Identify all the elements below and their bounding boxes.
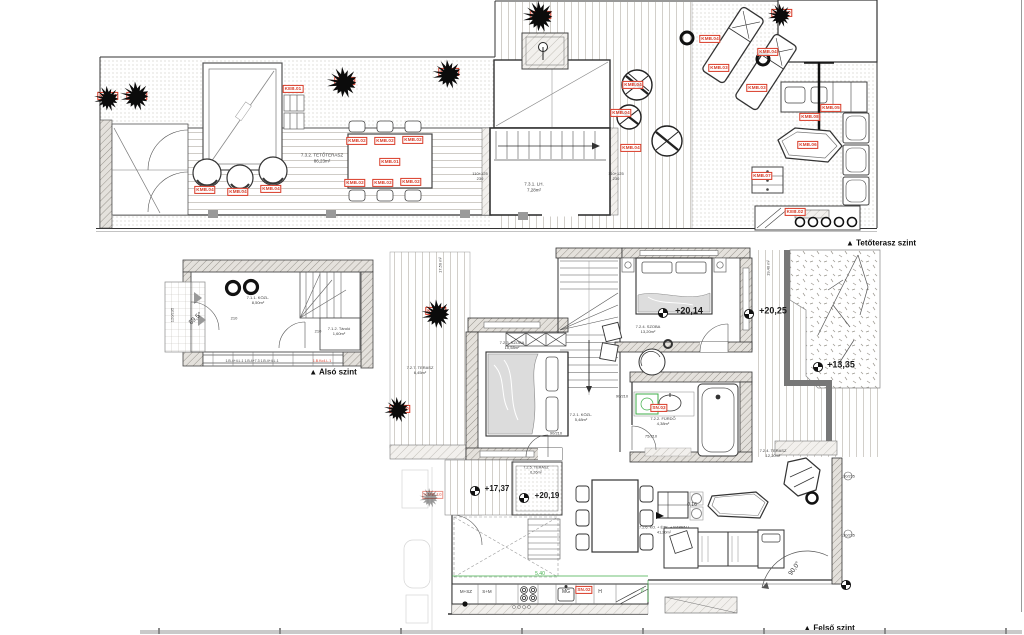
scale-tick [521, 628, 523, 634]
ref-label: KEB.02 [785, 208, 806, 216]
scale-tick [158, 628, 160, 634]
tree-icon [418, 295, 457, 334]
scale-tick [1005, 628, 1007, 634]
elevation-marker-icon [743, 308, 755, 320]
tree-icon [381, 393, 415, 427]
floor-plan-sheet: ▲ Tetőterasz szint ▲ Alsó szint ▲ Felső … [0, 0, 1024, 635]
annotation-text: 7.3.2. TETŐTERASZ 86,23m² [301, 152, 343, 163]
annotation-text: 5,40 [535, 571, 545, 577]
ref-label: KMB.04 [622, 81, 643, 89]
ref-label: KMB.01 [379, 158, 400, 166]
ref-label: KMB.03 [708, 64, 729, 72]
annotation-text: 7.2.4. SZOBA 13,20m² [636, 324, 661, 334]
scale-tick [884, 628, 886, 634]
scale-tick [763, 628, 765, 634]
page-border [1021, 0, 1022, 612]
ref-label: KMB.02 [400, 178, 421, 186]
annotation-text: 7.1.2. Tároló 1,60m² [328, 326, 350, 336]
elevation-marker-icon [657, 307, 669, 319]
elevation-marker-icon [840, 579, 852, 591]
annotation-text: 60 [640, 588, 645, 592]
ref-label: KEB.01 [283, 85, 304, 93]
ref-label: KMB.02 [346, 137, 367, 145]
ref-label: KMB.04 [699, 35, 720, 43]
annotation-text: 210 [315, 329, 322, 334]
annotation-text: 19,40 m² [766, 260, 771, 276]
annotation-text: 130/235 [841, 534, 855, 539]
scale-bar [140, 630, 1022, 634]
ref-label: KMB.04 [227, 188, 248, 196]
annotation-text: 130/235 [841, 475, 855, 480]
tree-icon [323, 62, 365, 104]
annotation-text: 7.3.1. LH. 7,28m² [524, 181, 544, 192]
scale-tick [642, 628, 644, 634]
scale-tick [400, 628, 402, 634]
annotation-text: 17,50 m² [438, 257, 443, 273]
annotation-text: +13,35 [827, 359, 855, 370]
tree-icon [417, 485, 443, 511]
tree-icon [117, 77, 156, 116]
ref-label: KMB.04 [610, 109, 631, 117]
annotation-text: 0,16 [687, 502, 697, 508]
annotation-text: 75/210 [645, 434, 657, 439]
annotation-text: 110+125 230 [608, 171, 623, 181]
ref-label: KMB.02 [374, 137, 395, 145]
annotation-text: S+M [482, 589, 491, 595]
tree-icon [765, 0, 796, 31]
annotation-text: 7.2.1. KÖZL. 5,48m² [570, 412, 593, 422]
annotation-text: 7.2.7. TERASZ 6,45m² [407, 365, 434, 375]
ref-label: KMB.07 [751, 172, 772, 180]
annotation-text: 7.2.4. TERASZ 12,20m² [760, 448, 787, 458]
ref-label: KMB.04 [194, 186, 215, 194]
ref-label: KMB.03 [746, 84, 767, 92]
elevation-marker-icon [812, 361, 824, 373]
tree-icon [519, 0, 561, 38]
ref-label: SN.02 [575, 586, 592, 594]
ref-label: KMB.02 [344, 179, 365, 187]
annotation-text: +20,14 [675, 305, 703, 316]
elevation-marker-icon [518, 492, 530, 504]
ref-label: KMB.02 [402, 136, 423, 144]
ref-label: KMB.02 [372, 179, 393, 187]
annotation-overlay: KMB.10KMB.10KMB.10KMB.10KMB.10KMB.10KEB.… [0, 0, 1024, 635]
annotation-text: 90/210 [550, 431, 562, 436]
annotation-text: 120/235 [170, 308, 175, 322]
annotation-text: H [598, 589, 602, 595]
annotation-text: 7.2.6. KO. + ÉTK. + NAPPALI 41,20m² [639, 525, 689, 534]
annotation-text: M+SZ [460, 589, 472, 595]
ref-label: KMB.06 [797, 141, 818, 149]
annotation-text: 1.B.4+4.L.1 1.B.4+7.3 1.B.4+4.L.1 [225, 359, 278, 363]
annotation-text: 210 [231, 316, 238, 321]
annotation-text: 7.2.3. SZOBA 10,58m² [500, 340, 525, 350]
annotation-text: 1.B.Ko4.L.1 [313, 359, 331, 363]
ref-label: KMB.08 [799, 113, 820, 121]
annotation-text: 7.1.1. KÖZL. 8,50m² [247, 295, 270, 305]
scale-tick [279, 628, 281, 634]
annotation-text: MG [562, 589, 570, 595]
annotation-text: 90,0° [787, 560, 802, 577]
annotation-text: 7.2.5. TERASZ 6,26m² [523, 465, 548, 474]
annotation-text: +20,19 [535, 491, 560, 501]
ref-label: KMB.05 [820, 104, 841, 112]
annotation-text: +17,37 [485, 484, 510, 494]
ref-label: SN.03 [650, 404, 667, 412]
ref-label: KMB.04 [620, 144, 641, 152]
ref-label: KMB.04 [757, 48, 778, 56]
elevation-marker-icon [469, 485, 481, 497]
annotation-text: 7.2.2. FÜRDŐ 4,38m² [650, 416, 675, 426]
annotation-text: 90/210 [616, 394, 628, 399]
annotation-text: 110+125 230 [472, 171, 487, 181]
annotation-text: 89,5° [188, 311, 205, 327]
tree-icon [429, 55, 468, 94]
ref-label: KMB.04 [260, 185, 281, 193]
annotation-text: +20,25 [759, 305, 787, 316]
